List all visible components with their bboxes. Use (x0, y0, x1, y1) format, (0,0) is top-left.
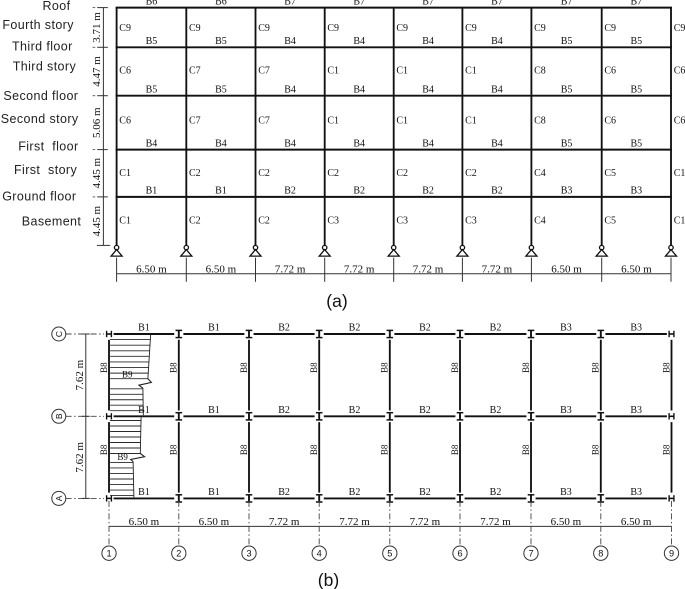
svg-text:B2: B2 (349, 323, 361, 334)
svg-text:B2: B2 (419, 487, 431, 498)
svg-text:B7: B7 (284, 0, 296, 7)
svg-text:C4: C4 (534, 168, 546, 179)
svg-text:B8: B8 (521, 362, 531, 373)
svg-text:B8: B8 (380, 362, 390, 373)
svg-text:C9: C9 (534, 23, 546, 34)
svg-text:B8: B8 (521, 444, 531, 455)
svg-text:C3: C3 (465, 216, 477, 227)
svg-text:1: 1 (106, 549, 111, 559)
svg-text:B4: B4 (284, 85, 296, 96)
svg-text:7.72 m: 7.72 m (482, 263, 513, 275)
svg-text:B5: B5 (146, 36, 158, 47)
svg-text:B3: B3 (630, 405, 642, 416)
svg-text:Basement: Basement (22, 215, 82, 229)
svg-text:B2: B2 (419, 323, 431, 334)
svg-text:B4: B4 (491, 85, 503, 96)
svg-text:B8: B8 (661, 362, 671, 373)
svg-text:C1: C1 (465, 116, 477, 127)
svg-text:B7: B7 (422, 0, 434, 7)
svg-text:B1: B1 (138, 323, 150, 334)
svg-text:C8: C8 (534, 116, 546, 127)
svg-text:C6: C6 (119, 116, 131, 127)
svg-text:B5: B5 (631, 85, 643, 96)
svg-text:B5: B5 (215, 36, 227, 47)
svg-text:B1: B1 (208, 487, 220, 498)
svg-text:(a): (a) (326, 291, 347, 311)
svg-text:B2: B2 (349, 405, 361, 416)
svg-text:B3: B3 (560, 405, 572, 416)
svg-text:B4: B4 (284, 138, 296, 149)
svg-text:4: 4 (317, 549, 322, 559)
svg-text:C9: C9 (604, 23, 616, 34)
svg-text:B8: B8 (239, 444, 249, 455)
svg-text:C2: C2 (258, 216, 270, 227)
svg-text:B8: B8 (99, 444, 109, 455)
svg-text:C1: C1 (327, 116, 339, 127)
svg-text:C6: C6 (604, 116, 616, 127)
svg-text:B4: B4 (422, 138, 434, 149)
svg-text:B3: B3 (561, 186, 573, 197)
svg-text:B4: B4 (353, 85, 365, 96)
svg-text:B8: B8 (239, 362, 249, 373)
svg-text:B2: B2 (284, 186, 296, 197)
svg-text:(b): (b) (318, 570, 339, 589)
svg-text:C1: C1 (119, 216, 131, 227)
svg-text:B8: B8 (591, 362, 601, 373)
svg-text:7.72 m: 7.72 m (410, 516, 441, 528)
svg-text:7.72 m: 7.72 m (339, 516, 370, 528)
svg-text:4.47 m: 4.47 m (91, 56, 103, 87)
svg-text:7.72 m: 7.72 m (344, 263, 375, 275)
svg-text:A: A (54, 495, 64, 501)
svg-text:C8: C8 (534, 66, 546, 77)
svg-text:C2: C2 (189, 168, 201, 179)
svg-text:B2: B2 (353, 186, 365, 197)
svg-text:Second floor: Second floor (3, 89, 78, 103)
svg-text:C6: C6 (119, 66, 131, 77)
svg-text:4.45 m: 4.45 m (91, 205, 103, 236)
svg-text:B1: B1 (138, 405, 150, 416)
svg-text:B9: B9 (122, 369, 133, 379)
svg-text:C7: C7 (258, 116, 270, 127)
svg-text:4.45 m: 4.45 m (91, 158, 103, 189)
svg-text:B7: B7 (561, 0, 573, 7)
svg-text:B2: B2 (278, 323, 290, 334)
svg-text:Roof: Roof (43, 0, 71, 13)
svg-text:B1: B1 (208, 323, 220, 334)
svg-text:B4: B4 (353, 138, 365, 149)
svg-text:C9: C9 (465, 23, 477, 34)
svg-text:7: 7 (528, 549, 533, 559)
svg-text:C6: C6 (674, 66, 685, 77)
svg-text:B1: B1 (208, 405, 220, 416)
svg-text:B2: B2 (490, 405, 502, 416)
svg-text:B2: B2 (422, 186, 434, 197)
svg-text:B8: B8 (661, 444, 671, 455)
svg-text:B3: B3 (560, 487, 572, 498)
svg-text:B1: B1 (215, 186, 227, 197)
svg-text:B9: B9 (117, 452, 128, 462)
svg-text:7.62 m: 7.62 m (74, 442, 86, 473)
svg-text:B3: B3 (631, 186, 643, 197)
svg-text:C1: C1 (674, 216, 685, 227)
svg-text:7.72 m: 7.72 m (269, 516, 300, 528)
svg-text:7.72 m: 7.72 m (413, 263, 444, 275)
svg-text:B3: B3 (560, 323, 572, 334)
svg-text:C6: C6 (604, 66, 616, 77)
svg-text:B5: B5 (561, 85, 573, 96)
svg-text:C6: C6 (674, 116, 685, 127)
svg-text:C2: C2 (258, 168, 270, 179)
svg-text:B5: B5 (631, 138, 643, 149)
svg-text:9: 9 (669, 549, 674, 559)
svg-text:B4: B4 (491, 138, 503, 149)
svg-text:6: 6 (457, 549, 462, 559)
svg-text:B2: B2 (490, 323, 502, 334)
svg-text:B8: B8 (591, 444, 601, 455)
svg-text:B4: B4 (146, 138, 158, 149)
svg-text:C7: C7 (258, 66, 270, 77)
svg-text:6.50 m: 6.50 m (129, 516, 160, 528)
svg-text:7.72 m: 7.72 m (480, 516, 511, 528)
svg-text:B7: B7 (353, 0, 365, 7)
svg-text:Third floor: Third floor (12, 40, 73, 54)
svg-text:B6: B6 (146, 0, 158, 7)
svg-text:C7: C7 (189, 66, 201, 77)
svg-text:Second story: Second story (1, 112, 79, 126)
svg-text:B4: B4 (422, 85, 434, 96)
svg-text:B2: B2 (491, 186, 503, 197)
svg-text:Third story: Third story (13, 60, 77, 74)
svg-text:First story: First story (14, 163, 77, 177)
svg-text:B2: B2 (278, 405, 290, 416)
svg-text:B5: B5 (561, 36, 573, 47)
svg-text:C2: C2 (465, 168, 477, 179)
svg-text:First floor: First floor (18, 139, 78, 153)
svg-text:B5: B5 (146, 85, 158, 96)
svg-text:5.06 m: 5.06 m (91, 107, 103, 138)
svg-text:B8: B8 (309, 362, 319, 373)
svg-text:Ground floor: Ground floor (2, 189, 76, 203)
svg-text:8: 8 (598, 549, 603, 559)
svg-text:B3: B3 (630, 323, 642, 334)
svg-text:C3: C3 (327, 216, 339, 227)
svg-text:C3: C3 (396, 216, 408, 227)
svg-text:B6: B6 (215, 0, 227, 7)
svg-text:B3: B3 (630, 487, 642, 498)
svg-text:B2: B2 (349, 487, 361, 498)
svg-text:C7: C7 (189, 116, 201, 127)
svg-text:B4: B4 (215, 138, 227, 149)
svg-text:7.62 m: 7.62 m (74, 359, 86, 390)
svg-text:C5: C5 (604, 168, 616, 179)
svg-text:6.50 m: 6.50 m (621, 516, 652, 528)
svg-text:C2: C2 (327, 168, 339, 179)
svg-text:C9: C9 (327, 23, 339, 34)
svg-text:B7: B7 (491, 0, 503, 7)
svg-text:C9: C9 (189, 23, 201, 34)
svg-text:6.50 m: 6.50 m (199, 516, 230, 528)
svg-text:C2: C2 (189, 216, 201, 227)
svg-text:B8: B8 (450, 444, 460, 455)
svg-text:B4: B4 (353, 36, 365, 47)
svg-text:C2: C2 (396, 168, 408, 179)
svg-text:C1: C1 (396, 66, 408, 77)
svg-text:C1: C1 (119, 168, 131, 179)
svg-text:2: 2 (176, 549, 181, 559)
svg-text:C4: C4 (534, 216, 546, 227)
svg-text:Fourth story: Fourth story (2, 18, 74, 32)
svg-text:6.50 m: 6.50 m (621, 263, 652, 275)
svg-text:C1: C1 (327, 66, 339, 77)
svg-text:C: C (54, 331, 64, 337)
svg-text:C1: C1 (465, 66, 477, 77)
svg-text:B8: B8 (380, 444, 390, 455)
svg-text:C9: C9 (258, 23, 270, 34)
svg-text:B5: B5 (631, 36, 643, 47)
svg-text:C5: C5 (604, 216, 616, 227)
svg-text:B1: B1 (146, 186, 158, 197)
svg-text:B: B (54, 413, 64, 419)
svg-text:C9: C9 (674, 23, 685, 34)
svg-text:B2: B2 (419, 405, 431, 416)
svg-text:B5: B5 (561, 138, 573, 149)
svg-text:B2: B2 (278, 487, 290, 498)
svg-text:B8: B8 (99, 362, 109, 373)
svg-text:B8: B8 (309, 444, 319, 455)
svg-text:C9: C9 (119, 23, 131, 34)
svg-text:3.71 m: 3.71 m (91, 12, 103, 43)
svg-text:B7: B7 (631, 0, 643, 7)
svg-text:6.50 m: 6.50 m (206, 263, 237, 275)
svg-text:B4: B4 (491, 36, 503, 47)
svg-text:6.50 m: 6.50 m (551, 263, 582, 275)
svg-text:B8: B8 (169, 444, 179, 455)
svg-text:C9: C9 (396, 23, 408, 34)
svg-text:B8: B8 (169, 362, 179, 373)
svg-text:B5: B5 (215, 85, 227, 96)
svg-text:3: 3 (246, 549, 251, 559)
svg-text:B2: B2 (490, 487, 502, 498)
svg-text:C1: C1 (396, 116, 408, 127)
svg-text:C1: C1 (674, 168, 685, 179)
svg-text:7.72 m: 7.72 m (275, 263, 306, 275)
svg-text:B8: B8 (450, 362, 460, 373)
svg-text:B4: B4 (284, 36, 296, 47)
svg-text:6.50 m: 6.50 m (136, 263, 167, 275)
svg-text:6.50 m: 6.50 m (551, 516, 582, 528)
svg-text:B1: B1 (138, 487, 150, 498)
svg-text:5: 5 (387, 549, 392, 559)
svg-text:B4: B4 (422, 36, 434, 47)
